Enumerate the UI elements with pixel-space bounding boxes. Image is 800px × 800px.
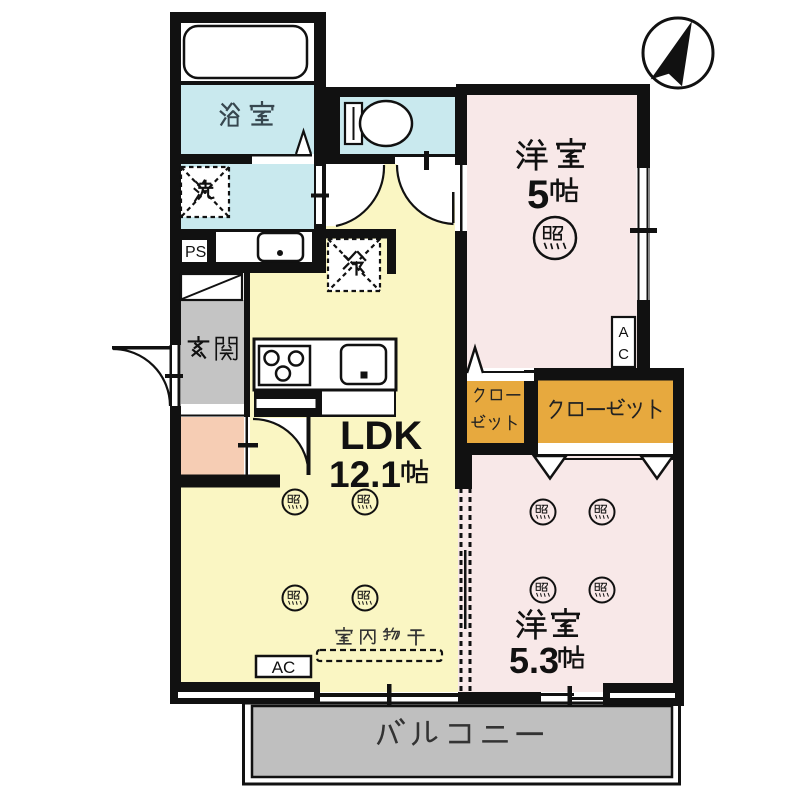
svg-text:AC: AC	[272, 658, 296, 677]
svg-text:C: C	[618, 346, 629, 363]
svg-text:PS: PS	[185, 244, 206, 261]
svg-text:5.3: 5.3	[509, 640, 559, 681]
svg-text:12.1: 12.1	[329, 454, 401, 495]
svg-text:5: 5	[527, 173, 549, 217]
svg-text:A: A	[618, 324, 628, 341]
svg-text:LDK: LDK	[340, 414, 422, 458]
